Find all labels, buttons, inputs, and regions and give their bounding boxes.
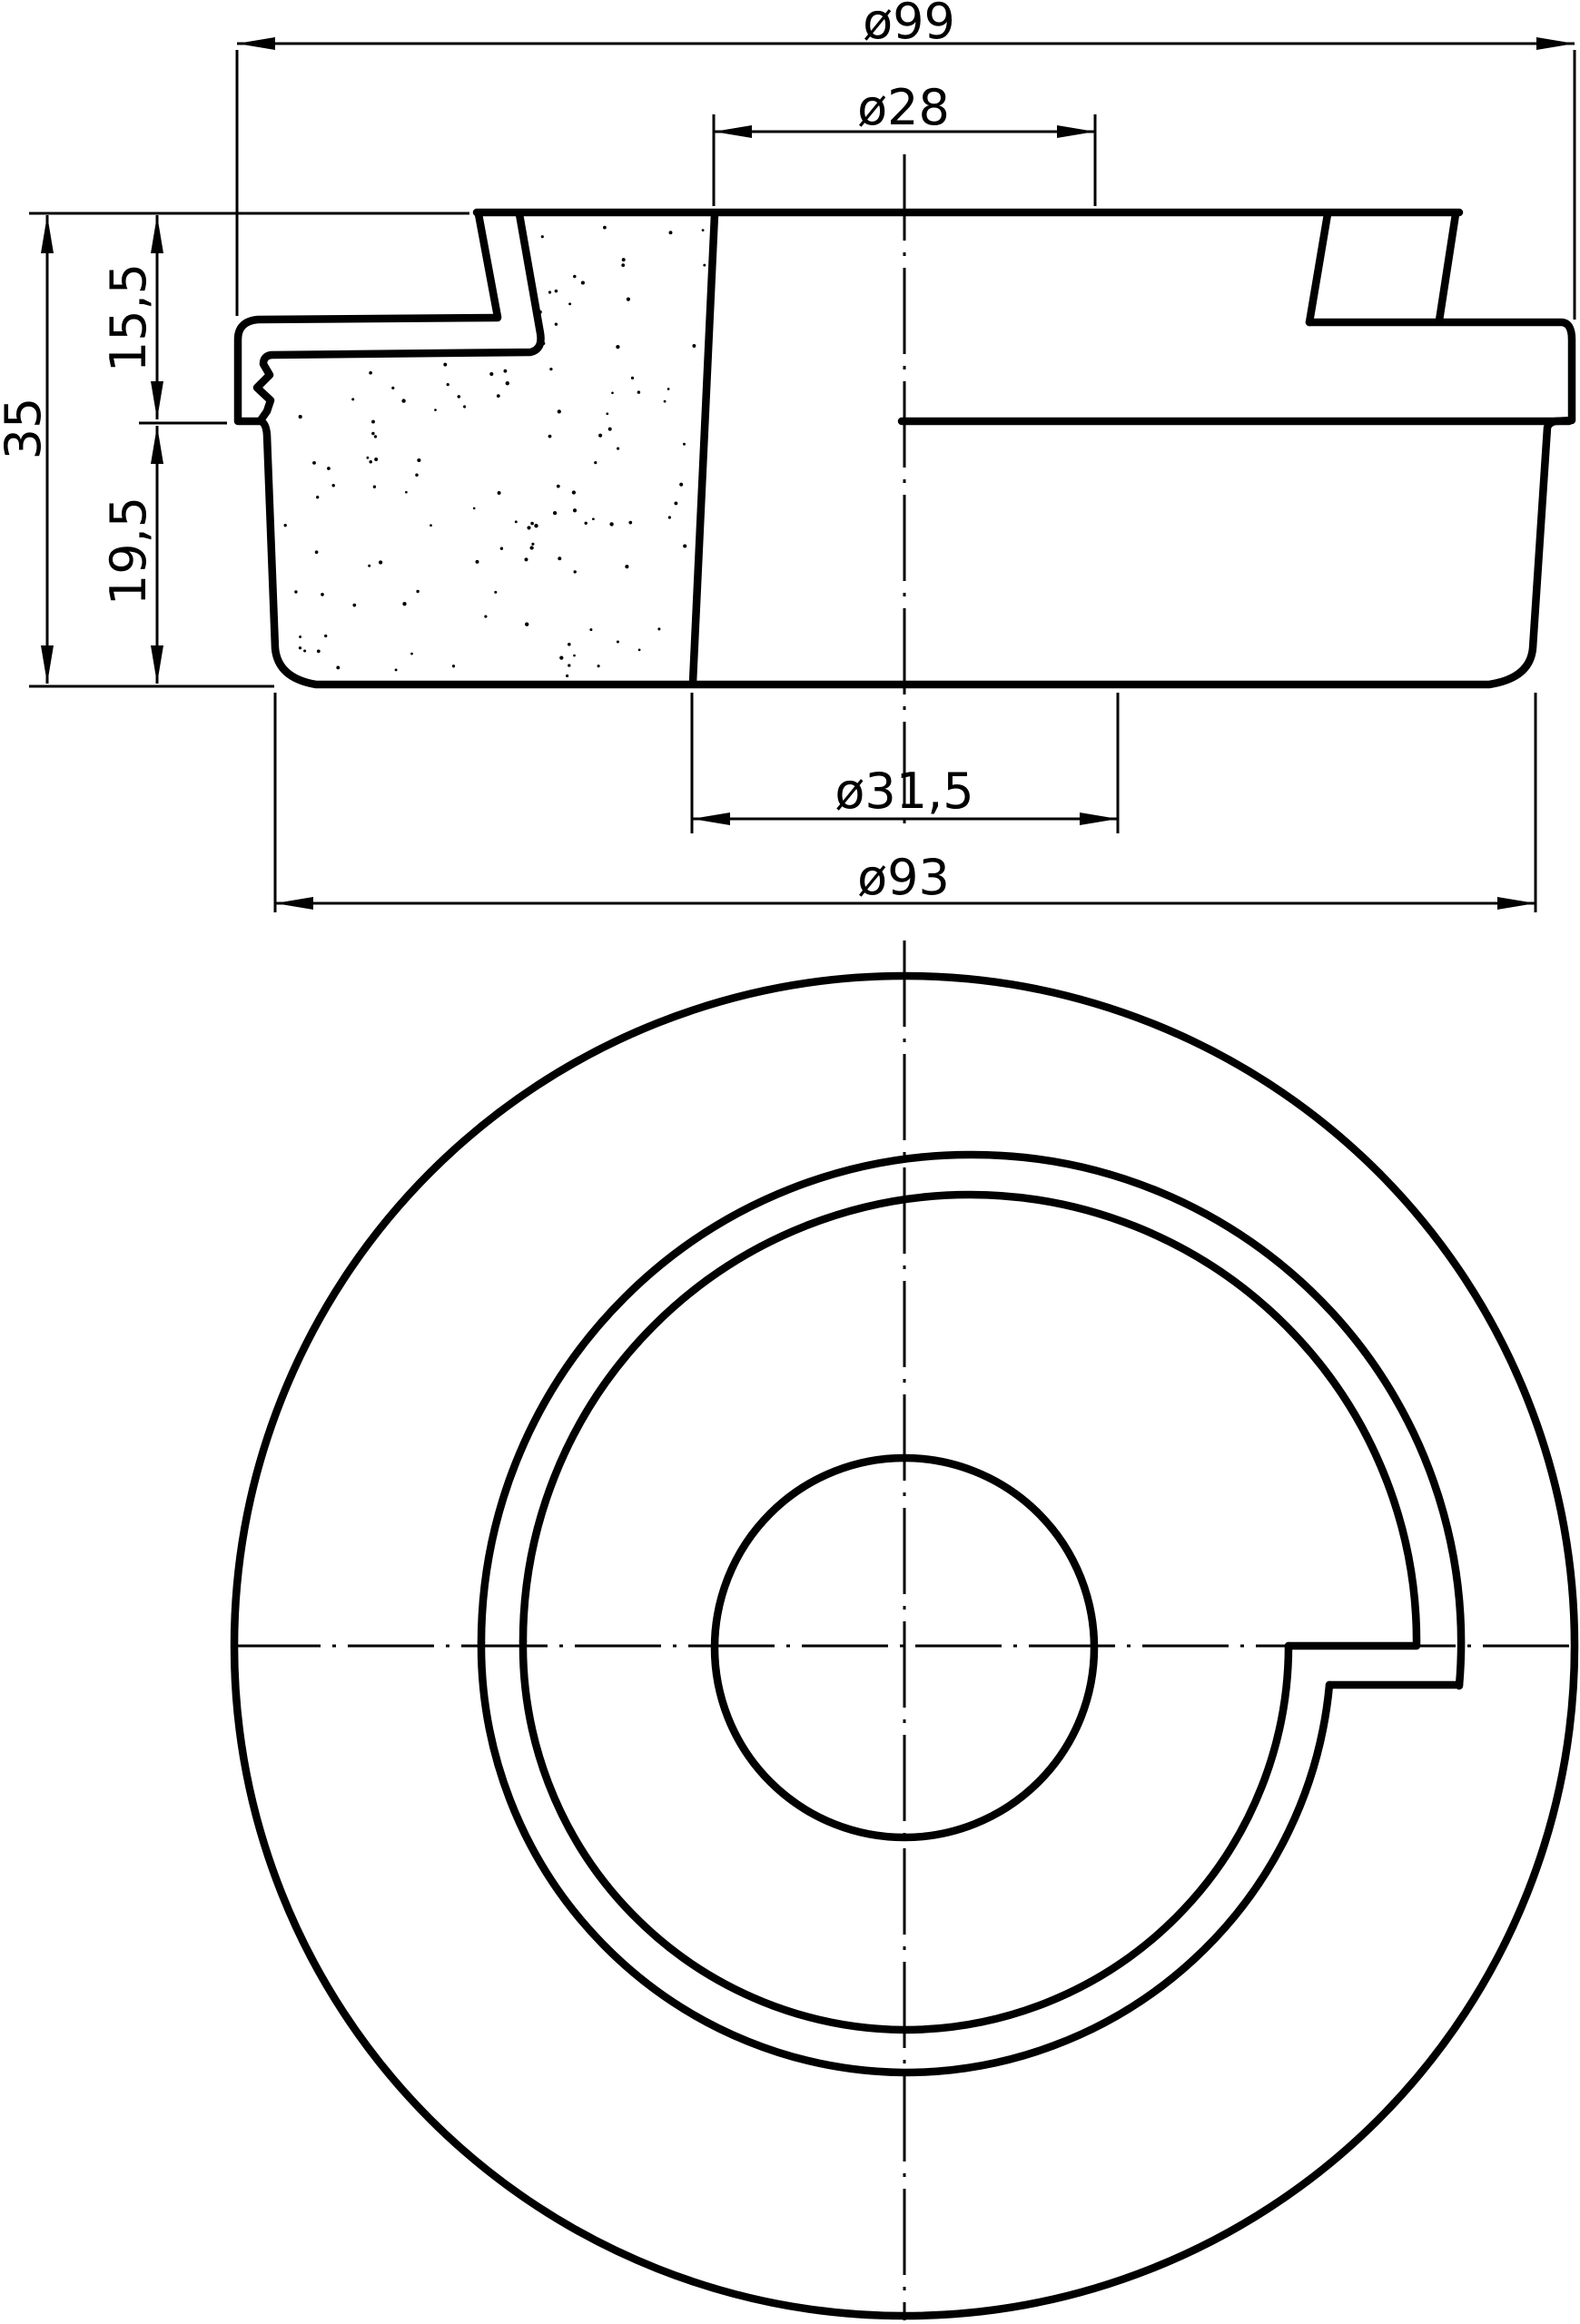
hole-wall xyxy=(693,214,715,683)
dim-upper-height-label: 15,5 xyxy=(100,263,157,372)
stipple-dot xyxy=(625,565,628,568)
dim-lower-height-label: 19,5 xyxy=(100,497,157,606)
stipple-dot xyxy=(594,461,597,464)
stipple-dot xyxy=(703,264,706,267)
stipple-dot xyxy=(611,391,614,394)
stipple-dot xyxy=(463,405,466,408)
stipple-dot xyxy=(476,560,479,564)
stipple-dot xyxy=(395,668,398,671)
stipple-dot xyxy=(559,655,563,659)
stipple-dot xyxy=(581,281,585,284)
stipple-dot xyxy=(557,485,560,488)
stipple-dot xyxy=(584,522,587,525)
stipple-dot xyxy=(541,235,544,238)
stipple-dot xyxy=(489,372,493,376)
stipple-dot xyxy=(558,409,561,413)
stipple-dot xyxy=(336,665,340,669)
stipple-dot xyxy=(530,522,534,526)
stipple-dot xyxy=(484,615,487,618)
stipple-dot xyxy=(538,310,542,314)
stipple-dot xyxy=(317,650,321,654)
stipple-dot xyxy=(531,543,534,546)
stipple-dot xyxy=(284,524,287,527)
stipple-dot xyxy=(589,628,592,631)
stipple-dot xyxy=(616,345,619,349)
drawing-canvas: ø99 ø28 35 15,5 19,5 ø31,5 ø93 xyxy=(0,0,1580,2324)
stipple-dot xyxy=(458,395,461,399)
stipple-dot xyxy=(683,544,686,547)
stipple-dot xyxy=(667,388,670,390)
stipple-dot xyxy=(638,649,641,652)
slot-wall-right-inner xyxy=(1309,214,1328,322)
stipple-dot xyxy=(374,458,378,461)
stipple-dot xyxy=(622,258,626,261)
stipple-dot xyxy=(327,467,331,470)
stipple-dot xyxy=(324,635,327,637)
stipple-dot xyxy=(352,604,356,607)
stipple-dot xyxy=(598,434,602,438)
stipple-dot xyxy=(366,457,369,459)
stipple-dot xyxy=(371,420,375,424)
stipple-dot xyxy=(373,486,376,488)
stipple-dot xyxy=(525,557,528,561)
stipple-dot xyxy=(368,565,370,567)
stipple-dot xyxy=(443,363,447,367)
stipple-dot xyxy=(401,399,405,402)
stipple-dot xyxy=(473,507,476,510)
stipple-dot xyxy=(374,435,377,438)
stipple-dot xyxy=(621,263,625,267)
stipple-dot xyxy=(617,448,619,450)
stipple-dot xyxy=(606,412,608,415)
stipple-dot xyxy=(566,675,568,677)
stipple-dot xyxy=(371,432,375,436)
stipple-dot xyxy=(312,461,316,465)
stipple-dot xyxy=(573,570,576,573)
stipple-dot xyxy=(603,226,607,230)
stipple-dot xyxy=(669,231,673,234)
dim-total-height-label: 35 xyxy=(0,398,52,460)
stipple-dot xyxy=(568,643,571,646)
stipple-dot xyxy=(692,344,696,348)
stipple-dot xyxy=(617,640,619,643)
plan-view xyxy=(234,940,1575,2320)
stipple-dot xyxy=(294,590,297,593)
stipple-dot xyxy=(628,521,632,525)
stipple-dot xyxy=(553,511,557,515)
stipple-dot xyxy=(541,341,545,345)
stipple-dot xyxy=(315,550,319,554)
stipple-dot xyxy=(657,627,660,630)
stipple-dot xyxy=(498,491,501,495)
stipple-dot xyxy=(452,665,455,667)
stipple-dot xyxy=(608,428,612,431)
stipple-dot xyxy=(351,398,354,400)
stipple-dot xyxy=(683,443,686,446)
stipple-dot xyxy=(447,383,449,386)
stipple-dot xyxy=(573,275,577,279)
stipple-dot xyxy=(534,524,538,527)
dim-bottom-hole-diameter-label: ø31,5 xyxy=(834,763,973,820)
stipple-dot xyxy=(299,635,301,638)
stipple-dot xyxy=(558,556,561,560)
stipple-dot xyxy=(555,290,558,293)
stipple-dot xyxy=(331,484,335,487)
stipple-dot xyxy=(609,522,613,526)
dim-top-hole-diameter-label: ø28 xyxy=(857,79,950,136)
stipple-dot xyxy=(627,298,630,301)
stipple-dot xyxy=(527,526,530,529)
stipple-dot xyxy=(631,377,634,379)
stipple-dot xyxy=(369,371,372,375)
stipple-dot xyxy=(379,560,382,564)
stipple-dot xyxy=(391,387,394,389)
stipple-dot xyxy=(402,602,406,606)
stipple-dot xyxy=(316,496,319,498)
stipple-dot xyxy=(410,653,413,655)
stipple-dot xyxy=(555,323,558,326)
stipple-dot xyxy=(529,546,533,549)
stipple-dot xyxy=(525,623,528,626)
stipple-dot xyxy=(664,400,667,403)
stipple-dot xyxy=(321,593,324,596)
stipple-dot xyxy=(592,517,595,520)
stipple-dot xyxy=(369,460,372,464)
stipple-dot xyxy=(494,591,497,594)
stipple-dot xyxy=(549,368,552,370)
stipple-dot xyxy=(415,473,419,477)
stipple-dot xyxy=(417,458,420,462)
stipple-dot xyxy=(679,483,683,487)
cap-outer-wall-left xyxy=(479,214,498,317)
stipple-dot xyxy=(568,664,570,666)
stipple-dot xyxy=(573,655,576,657)
groove-outer-wall-eccentric-arc xyxy=(481,1155,1461,1686)
stipple-dot xyxy=(299,646,301,649)
stipple-dot xyxy=(637,390,641,394)
stipple-dot xyxy=(548,435,552,438)
section-view: ø99 ø28 35 15,5 19,5 ø31,5 ø93 xyxy=(0,0,1575,912)
stipple-dot xyxy=(303,649,306,652)
stipple-dot xyxy=(568,302,571,305)
stipple-dot xyxy=(504,369,508,373)
stipple-dot xyxy=(572,490,576,494)
stipple-dot xyxy=(674,501,677,505)
stipple-dot xyxy=(430,524,432,527)
technical-drawing: ø99 ø28 35 15,5 19,5 ø31,5 ø93 xyxy=(0,0,1580,2324)
stipple-dot xyxy=(702,229,705,231)
stipple-dot xyxy=(506,381,509,385)
dim-base-diameter-label: ø93 xyxy=(857,849,950,906)
stipple-dot xyxy=(548,290,551,293)
stipple-dot xyxy=(597,665,600,667)
stipple-dot xyxy=(405,491,408,494)
stipple-dot xyxy=(299,415,302,419)
dim-overall-diameter-label: ø99 xyxy=(863,0,955,50)
stipple-dot xyxy=(416,590,419,593)
stipple-dot xyxy=(497,394,500,398)
stipple-dot xyxy=(515,520,518,523)
stipple-dot xyxy=(434,409,437,411)
slot-wall-right-outer xyxy=(1439,214,1456,320)
stipple-dot xyxy=(668,516,671,518)
stipple-dot xyxy=(573,508,577,512)
stipple-dot xyxy=(500,547,503,550)
